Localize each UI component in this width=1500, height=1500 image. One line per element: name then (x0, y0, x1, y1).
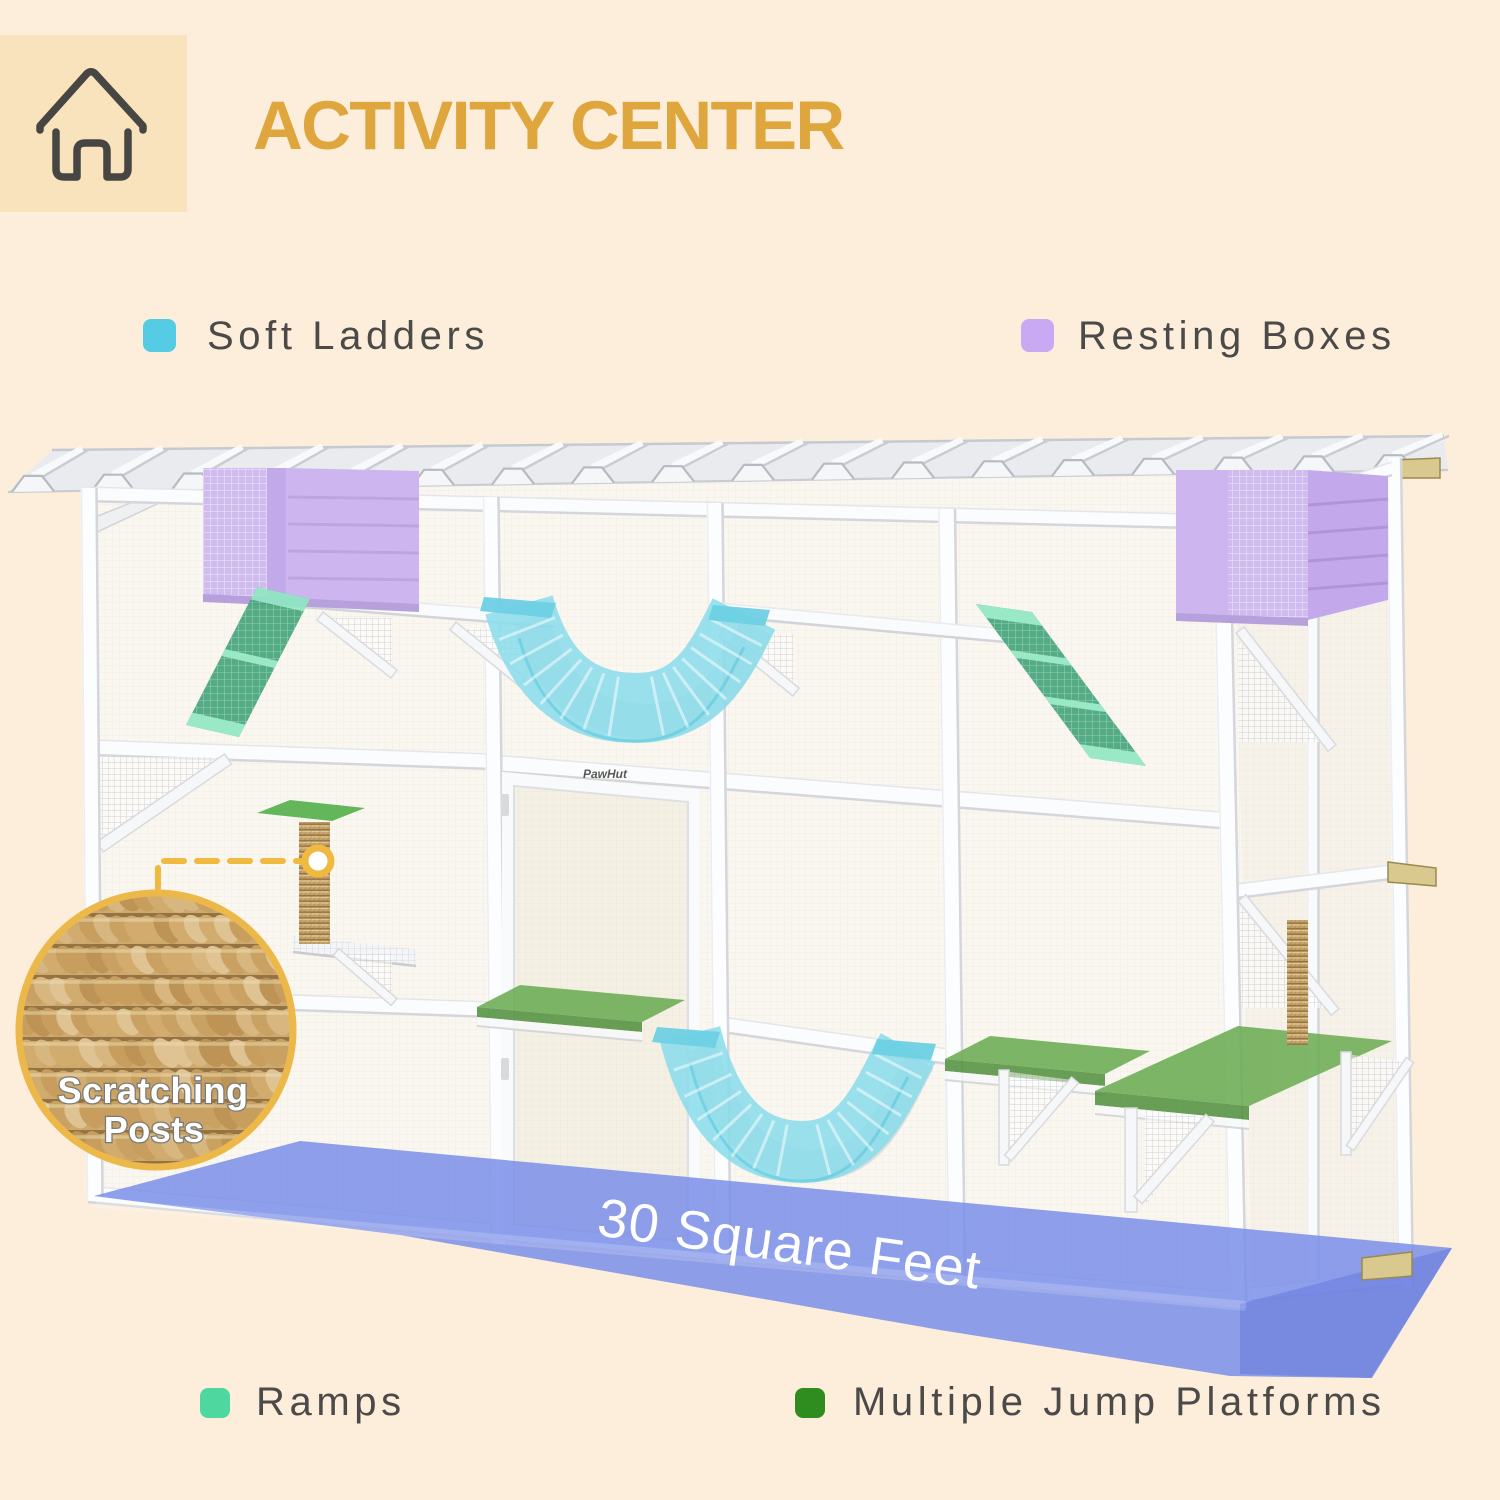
svg-text:ACTIVITY CENTER: ACTIVITY CENTER (253, 87, 844, 164)
svg-text:Multiple Jump Platforms: Multiple Jump Platforms (853, 1380, 1386, 1424)
svg-text:Resting Boxes: Resting Boxes (1078, 314, 1396, 358)
svg-text:PawHut: PawHut (583, 767, 628, 781)
svg-text:Scratching: Scratching (57, 1070, 248, 1111)
svg-text:Posts: Posts (104, 1109, 205, 1150)
svg-text:Soft Ladders: Soft Ladders (207, 314, 489, 358)
svg-text:Ramps: Ramps (256, 1380, 406, 1424)
